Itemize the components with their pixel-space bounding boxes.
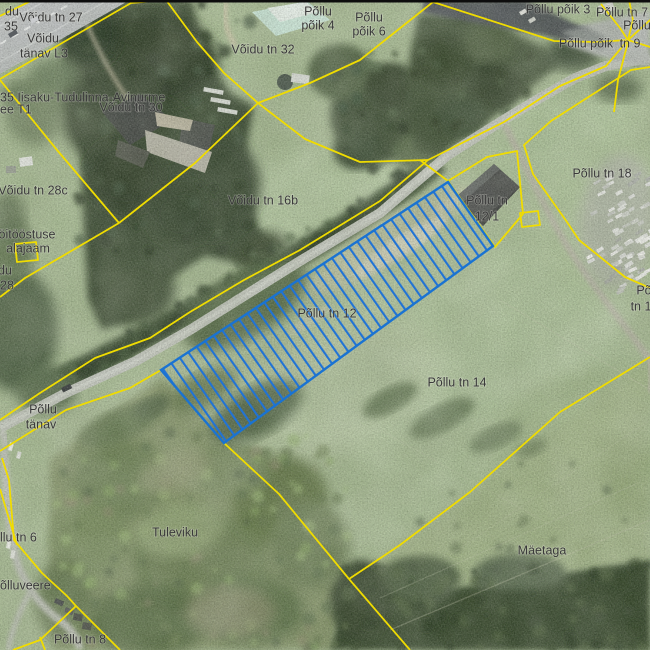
svg-text:tn 9: tn 9: [620, 37, 641, 51]
svg-text:alajaam: alajaam: [6, 242, 50, 256]
svg-text:du: du: [5, 5, 19, 19]
svg-text:Põllu tn 8: Põllu tn 8: [54, 633, 106, 647]
svg-text:Mäetaga: Mäetaga: [518, 544, 567, 558]
svg-text:llu tn 6: llu tn 6: [0, 531, 37, 545]
svg-text:Põllu põik 3: Põllu põik 3: [526, 3, 591, 17]
svg-text:õlluveere: õlluveere: [0, 579, 51, 593]
svg-text:öitööstuse: öitööstuse: [0, 228, 56, 242]
svg-text:28: 28: [0, 279, 14, 293]
svg-text:12/1: 12/1: [475, 210, 499, 224]
svg-text:Põllu: Põllu: [355, 11, 383, 25]
svg-text:ee T1: ee T1: [0, 103, 32, 117]
svg-text:Põllu: Põllu: [304, 5, 332, 19]
svg-text:Põllu: Põllu: [29, 403, 57, 417]
svg-text:Võidu tn 28c: Võidu tn 28c: [0, 184, 68, 198]
svg-text:Põllu põik: Põllu põik: [559, 37, 614, 51]
svg-text:Võidu tn 32: Võidu tn 32: [231, 43, 294, 57]
svg-text:Võidu tn 27: Võidu tn 27: [19, 11, 82, 25]
svg-text:Võidu tn 30: Võidu tn 30: [99, 101, 162, 115]
svg-text:du: du: [0, 264, 12, 278]
svg-text:Põllu tn 12: Põllu tn 12: [297, 307, 356, 321]
svg-text:Põllu tn 7: Põllu tn 7: [596, 6, 648, 20]
svg-text:põik 6: põik 6: [352, 25, 385, 39]
svg-text:tänav L3: tänav L3: [20, 47, 68, 61]
svg-text:Põllu tn 18: Põllu tn 18: [572, 167, 631, 181]
svg-text:tänav: tänav: [26, 418, 57, 432]
svg-text:Põllu tn 14: Põllu tn 14: [427, 376, 486, 390]
svg-text:põik 4: põik 4: [301, 19, 334, 33]
svg-text:Võidu tn 16b: Võidu tn 16b: [228, 194, 298, 208]
svg-text:Põ: Põ: [636, 284, 650, 298]
svg-text:tn 1: tn 1: [631, 300, 650, 314]
svg-text:Põllu: Põllu: [623, 19, 650, 33]
svg-text:Võidu: Võidu: [27, 32, 59, 46]
svg-text:Põllu tn: Põllu tn: [466, 194, 508, 208]
svg-text:Tuleviku: Tuleviku: [152, 526, 198, 540]
